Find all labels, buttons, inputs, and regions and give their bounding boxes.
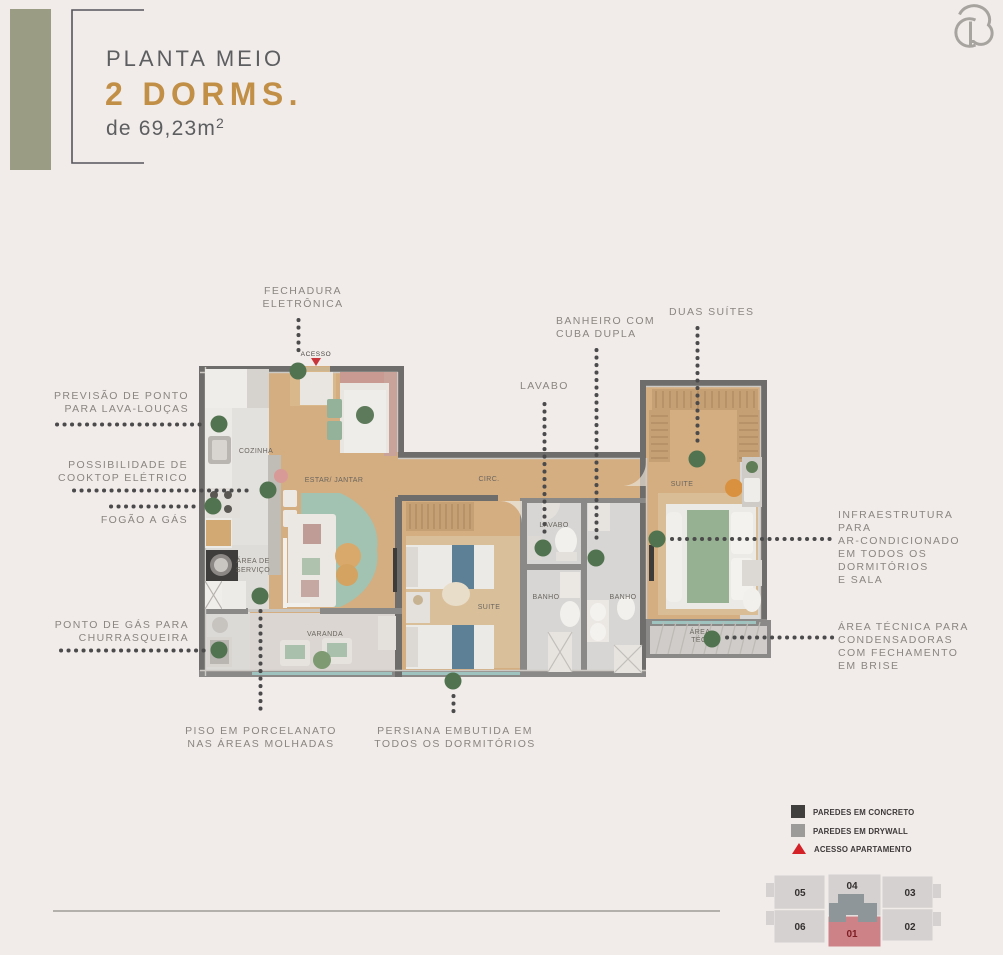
svg-text:BANHEIRO COM: BANHEIRO COM xyxy=(556,315,655,327)
svg-text:ACESSO APARTAMENTO: ACESSO APARTAMENTO xyxy=(814,845,912,854)
svg-text:COZINHA: COZINHA xyxy=(239,448,273,455)
svg-text:INFRAESTRUTURA: INFRAESTRUTURA xyxy=(838,509,953,521)
svg-text:CUBA DUPLA: CUBA DUPLA xyxy=(556,328,637,340)
svg-text:ÁREA TÉCNICA PARA: ÁREA TÉCNICA PARA xyxy=(838,620,969,633)
svg-text:2 DORMS.: 2 DORMS. xyxy=(105,76,303,112)
svg-text:DORMITÓRIOS: DORMITÓRIOS xyxy=(838,560,929,573)
svg-text:03: 03 xyxy=(904,888,916,899)
svg-text:SUITE: SUITE xyxy=(478,604,501,611)
svg-text:CHURRASQUEIRA: CHURRASQUEIRA xyxy=(79,632,189,644)
svg-text:01: 01 xyxy=(846,929,858,940)
svg-text:SUITE: SUITE xyxy=(671,481,694,488)
svg-text:ACESSO: ACESSO xyxy=(301,351,332,358)
svg-text:BANHO: BANHO xyxy=(610,594,637,601)
svg-text:05: 05 xyxy=(794,888,806,899)
svg-text:POSSIBILIDADE DE: POSSIBILIDADE DE xyxy=(68,459,188,471)
svg-text:PERSIANA EMBUTIDA EM: PERSIANA EMBUTIDA EM xyxy=(377,725,533,737)
svg-text:COOKTOP ELÉTRICO: COOKTOP ELÉTRICO xyxy=(58,471,188,484)
svg-text:EM BRISE: EM BRISE xyxy=(838,660,899,672)
svg-text:CIRC.: CIRC. xyxy=(478,476,499,483)
svg-text:ÁREA DE: ÁREA DE xyxy=(236,556,269,565)
svg-text:PAREDES EM DRYWALL: PAREDES EM DRYWALL xyxy=(813,827,908,836)
svg-text:06: 06 xyxy=(794,922,806,933)
svg-text:TODOS OS DORMITÓRIOS: TODOS OS DORMITÓRIOS xyxy=(374,737,535,750)
svg-text:de 69,23m2: de 69,23m2 xyxy=(106,115,225,140)
svg-text:DUAS SUÍTES: DUAS SUÍTES xyxy=(669,305,754,318)
svg-text:02: 02 xyxy=(904,922,916,933)
svg-text:PLANTA MEIO: PLANTA MEIO xyxy=(106,46,284,71)
svg-text:EM TODOS OS: EM TODOS OS xyxy=(838,548,927,560)
svg-text:FECHADURA: FECHADURA xyxy=(264,285,342,297)
svg-text:PARA: PARA xyxy=(838,522,871,534)
svg-text:LAVABO: LAVABO xyxy=(520,380,569,392)
svg-text:SERVIÇO: SERVIÇO xyxy=(236,567,270,574)
svg-text:FOGÃO A GÁS: FOGÃO A GÁS xyxy=(101,513,188,526)
svg-text:NAS ÁREAS MOLHADAS: NAS ÁREAS MOLHADAS xyxy=(187,737,334,750)
svg-text:04: 04 xyxy=(846,881,858,892)
svg-text:PAREDES EM CONCRETO: PAREDES EM CONCRETO xyxy=(813,808,914,817)
svg-text:ELETRÔNICA: ELETRÔNICA xyxy=(262,297,343,310)
svg-text:AR-CONDICIONADO: AR-CONDICIONADO xyxy=(838,535,960,547)
svg-text:VARANDA: VARANDA xyxy=(307,631,343,638)
svg-text:ESTAR/ JANTAR: ESTAR/ JANTAR xyxy=(305,477,364,484)
svg-text:PARA LAVA-LOUÇAS: PARA LAVA-LOUÇAS xyxy=(64,403,189,415)
svg-text:CONDENSADORAS: CONDENSADORAS xyxy=(838,634,953,646)
svg-text:PISO EM PORCELANATO: PISO EM PORCELANATO xyxy=(185,725,337,737)
svg-text:BANHO: BANHO xyxy=(533,594,560,601)
svg-text:E SALA: E SALA xyxy=(838,574,883,586)
svg-text:PONTO DE GÁS PARA: PONTO DE GÁS PARA xyxy=(55,618,189,631)
svg-text:PREVISÃO DE PONTO: PREVISÃO DE PONTO xyxy=(54,389,189,402)
svg-text:COM FECHAMENTO: COM FECHAMENTO xyxy=(838,647,958,659)
